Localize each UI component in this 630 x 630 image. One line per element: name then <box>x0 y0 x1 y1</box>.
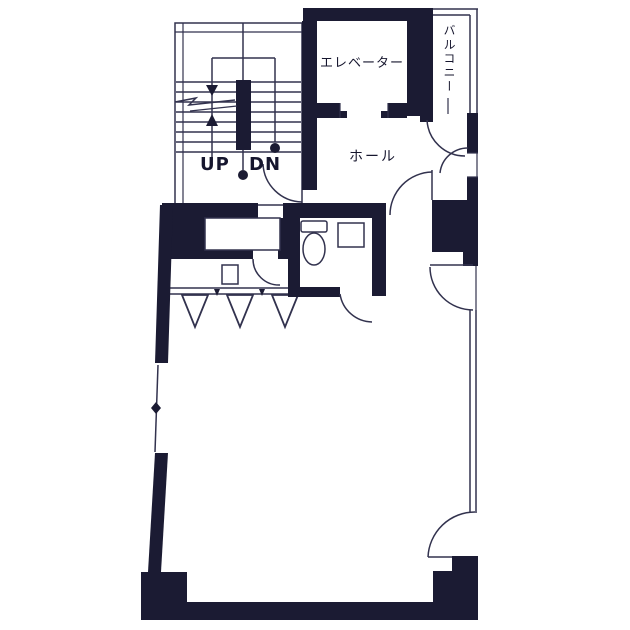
closet-door-arc <box>253 259 280 285</box>
stair-up-arrow-icon <box>206 114 218 126</box>
hall-door-arc <box>390 172 432 215</box>
bottom-door-arc <box>428 512 475 557</box>
vestibule-door-arc <box>440 148 468 173</box>
hall-label: ホール <box>333 146 413 166</box>
stairs-down-label: DN <box>249 154 281 175</box>
toilet-room <box>283 203 386 322</box>
toilet-door-arc <box>340 294 372 322</box>
floor-plan-drawing <box>0 0 630 630</box>
right-window <box>470 310 476 513</box>
balcony-door-arc <box>427 120 465 156</box>
storage-counter-area <box>162 203 300 327</box>
toilet-icon <box>301 221 327 265</box>
floor-plan: エレベーター バルコニー ホール UP DN <box>0 0 630 630</box>
counter-triangles <box>182 289 298 327</box>
washbasin-icon <box>338 223 364 247</box>
right-wall <box>390 148 478 557</box>
stairwell <box>175 23 302 205</box>
stair-down-arrow-icon <box>206 85 218 96</box>
main-room-walls <box>141 205 478 620</box>
closet <box>205 218 280 250</box>
balcony-label: バルコニー <box>441 24 458 120</box>
elevator-label: エレベーター <box>308 52 416 71</box>
stair-down-start-dot <box>270 143 280 153</box>
stair-divider <box>236 80 251 150</box>
room-door-arc <box>430 267 473 310</box>
stairs-up-label: UP <box>200 154 230 175</box>
stair-up-start-dot <box>238 170 248 180</box>
sink-icon <box>222 265 238 284</box>
window-marker-icon <box>151 402 161 414</box>
pipe-shaft-block <box>432 200 478 252</box>
